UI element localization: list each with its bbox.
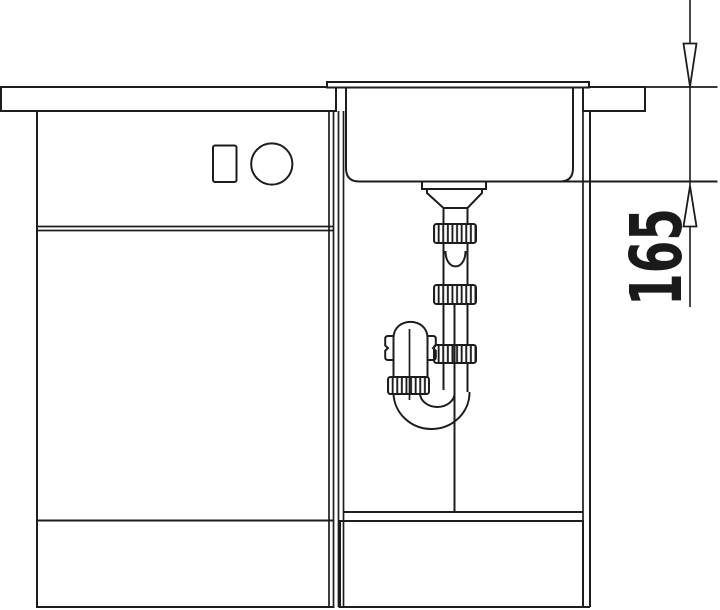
plinth-panel bbox=[340, 521, 583, 607]
left-cabinet-panel-divider bbox=[37, 227, 334, 231]
drain-assembly bbox=[385, 182, 486, 513]
trap-side-lug-left bbox=[385, 336, 393, 360]
drain-flange bbox=[422, 182, 486, 190]
left-cabinet bbox=[36, 111, 335, 607]
inner-pipe-end bbox=[446, 251, 466, 266]
union-nut-4 bbox=[388, 377, 429, 394]
drain-pipe-segment-1 bbox=[444, 208, 468, 224]
diagram-canvas: 165 bbox=[0, 0, 720, 610]
drain-pipe-segment-2 bbox=[444, 243, 468, 285]
trap-u-bend-inner bbox=[420, 393, 455, 407]
dimension-annotation: 165 bbox=[616, 0, 699, 307]
sink-basin-walls bbox=[346, 87, 573, 182]
union-nut-1 bbox=[434, 224, 476, 243]
sink-installation-diagram: 165 bbox=[0, 0, 720, 610]
sink-rim bbox=[327, 82, 589, 88]
trap-u-bend-outer bbox=[394, 392, 470, 429]
dimension-label: 165 bbox=[616, 208, 699, 306]
control-knob bbox=[251, 143, 292, 184]
drain-tailpiece bbox=[427, 189, 482, 208]
countertop-right-slab bbox=[583, 87, 645, 111]
trap-cap bbox=[394, 322, 428, 377]
dimension-arrow-top bbox=[684, 44, 697, 87]
sink bbox=[327, 82, 718, 182]
union-nut-2 bbox=[434, 285, 476, 304]
control-square bbox=[213, 146, 237, 183]
countertop bbox=[1, 87, 718, 111]
countertop-left-slab bbox=[1, 87, 336, 111]
